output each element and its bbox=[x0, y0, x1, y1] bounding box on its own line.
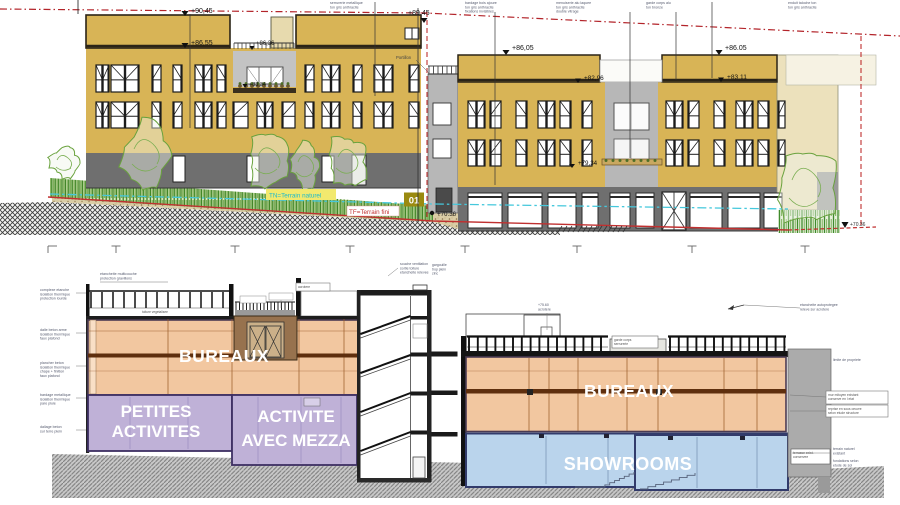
svg-text:ton bronze: ton bronze bbox=[646, 5, 663, 9]
svg-text:+86.05: +86.05 bbox=[725, 45, 747, 52]
svg-text:etude de sol: etude de sol bbox=[833, 463, 852, 467]
svg-text:double vitrage: double vitrage bbox=[556, 10, 579, 14]
svg-text:BUREAUX: BUREAUX bbox=[179, 346, 269, 366]
svg-text:+70.36: +70.36 bbox=[437, 211, 457, 218]
svg-text:+82,96: +82,96 bbox=[584, 75, 604, 82]
svg-text:TN=Terrain naturel: TN=Terrain naturel bbox=[269, 193, 321, 200]
svg-text:protection gravillons: protection gravillons bbox=[100, 276, 132, 280]
svg-text:AVEC MEZZA: AVEC MEZZA bbox=[241, 431, 350, 450]
svg-text:+83,34: +83,34 bbox=[249, 82, 266, 88]
svg-text:TF=Terrain fini: TF=Terrain fini bbox=[349, 209, 389, 216]
svg-text:acrotere: acrotere bbox=[298, 285, 310, 289]
svg-text:fixations invisibles: fixations invisibles bbox=[465, 10, 494, 14]
svg-text:releve sur acrotere: releve sur acrotere bbox=[800, 307, 829, 311]
svg-text:SHOWROOMS: SHOWROOMS bbox=[564, 454, 693, 474]
svg-text:ton gris anthracite: ton gris anthracite bbox=[788, 5, 817, 9]
svg-text:+70.36: +70.36 bbox=[850, 222, 866, 228]
svg-text:selon etude structure: selon etude structure bbox=[828, 411, 859, 415]
svg-text:conservee: conservee bbox=[793, 455, 808, 459]
svg-text:+83.11: +83.11 bbox=[727, 74, 747, 81]
svg-text:protection lourde: protection lourde bbox=[40, 297, 67, 301]
svg-text:+89.45: +89.45 bbox=[408, 10, 430, 17]
svg-text:toiture vegetalisee: toiture vegetalisee bbox=[142, 310, 168, 314]
svg-text:BUREAUX: BUREAUX bbox=[584, 381, 674, 401]
svg-text:conserve en l etat: conserve en l etat bbox=[828, 397, 854, 401]
svg-text:acrotere: acrotere bbox=[538, 307, 551, 311]
svg-text:PETITES: PETITES bbox=[121, 402, 192, 421]
svg-text:faux plafond: faux plafond bbox=[40, 337, 60, 341]
svg-text:faux plafond: faux plafond bbox=[40, 374, 60, 378]
svg-text:etancheite relevee: etancheite relevee bbox=[400, 271, 429, 275]
svg-text:ACTIVITES: ACTIVITES bbox=[112, 422, 201, 441]
svg-text:+86,36: +86,36 bbox=[256, 41, 275, 47]
svg-text:+90,45: +90,45 bbox=[191, 8, 213, 15]
svg-text:existant: existant bbox=[833, 451, 845, 455]
svg-text:+86,05: +86,05 bbox=[512, 45, 534, 52]
svg-text:limite de propriete: limite de propriete bbox=[833, 358, 861, 362]
svg-text:ACTIVITE: ACTIVITE bbox=[257, 407, 334, 426]
svg-text:sur terre plein: sur terre plein bbox=[40, 429, 62, 433]
svg-text:zinc: zinc bbox=[432, 272, 438, 276]
svg-text:+79,34: +79,34 bbox=[578, 160, 598, 167]
svg-text:pare pluie: pare pluie bbox=[40, 402, 56, 406]
svg-text:Portillon: Portillon bbox=[396, 55, 412, 60]
svg-text:ton gris anthracite: ton gris anthracite bbox=[330, 5, 359, 9]
svg-text:+86,55: +86,55 bbox=[191, 40, 213, 47]
svg-text:serrurerie: serrurerie bbox=[614, 342, 628, 346]
